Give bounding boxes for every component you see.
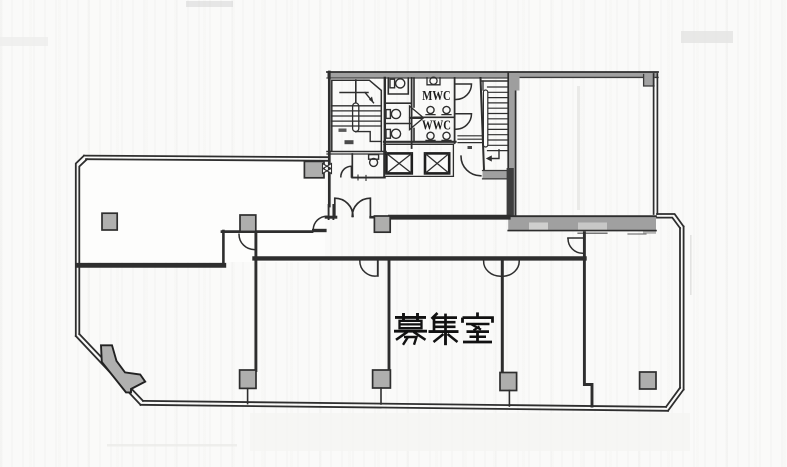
svg-text:MWC: MWC: [422, 88, 451, 103]
svg-text:WWC: WWC: [422, 117, 451, 132]
